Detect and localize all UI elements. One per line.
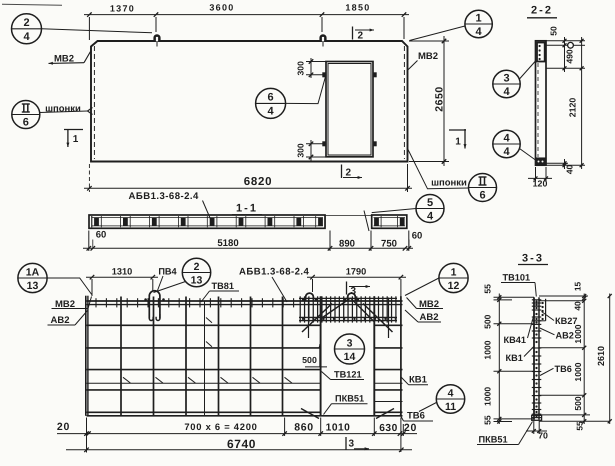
svg-text:3600: 3600 xyxy=(209,3,234,13)
svg-text:ТВ6: ТВ6 xyxy=(555,364,572,374)
svg-text:ТВ121: ТВ121 xyxy=(334,370,362,380)
svg-text:6740: 6740 xyxy=(227,437,256,451)
svg-text:6: 6 xyxy=(23,117,29,129)
svg-text:КВ41: КВ41 xyxy=(504,335,526,345)
svg-text:40: 40 xyxy=(573,301,583,311)
svg-text:ПВ4: ПВ4 xyxy=(158,266,177,276)
svg-text:2120: 2120 xyxy=(568,98,578,118)
svg-text:55: 55 xyxy=(483,415,493,425)
svg-text:13: 13 xyxy=(27,280,39,292)
svg-text:40: 40 xyxy=(565,165,575,175)
svg-text:3: 3 xyxy=(503,72,509,84)
svg-text:890: 890 xyxy=(339,239,355,250)
svg-text:4: 4 xyxy=(448,387,454,399)
svg-text:2650: 2650 xyxy=(434,86,446,111)
svg-text:60: 60 xyxy=(96,230,107,241)
svg-text:1: 1 xyxy=(451,266,457,278)
svg-text:ТВ81: ТВ81 xyxy=(212,281,234,291)
svg-text:6: 6 xyxy=(268,92,274,104)
svg-text:500: 500 xyxy=(483,314,493,329)
svg-text:3-3: 3-3 xyxy=(522,253,544,265)
svg-text:3: 3 xyxy=(349,439,355,450)
svg-text:60: 60 xyxy=(412,231,423,242)
svg-text:300: 300 xyxy=(296,61,306,76)
svg-text:70: 70 xyxy=(538,431,548,441)
svg-text:20: 20 xyxy=(404,422,417,434)
svg-text:4: 4 xyxy=(503,86,510,98)
svg-text:1А: 1А xyxy=(26,266,40,278)
svg-text:ПКВ51: ПКВ51 xyxy=(479,434,508,444)
svg-text:ТВ6: ТВ6 xyxy=(407,410,425,421)
svg-text:АБВ1.3-68-2.4: АБВ1.3-68-2.4 xyxy=(239,267,310,278)
svg-text:1: 1 xyxy=(476,12,482,24)
svg-text:АВ2: АВ2 xyxy=(419,312,438,323)
svg-text:4: 4 xyxy=(268,105,275,117)
svg-text:1000: 1000 xyxy=(483,387,493,406)
svg-text:1310: 1310 xyxy=(112,266,132,276)
svg-text:КВ1: КВ1 xyxy=(506,353,523,363)
svg-text:500: 500 xyxy=(302,355,317,365)
svg-text:14: 14 xyxy=(344,351,356,363)
svg-text:4: 4 xyxy=(476,26,483,38)
svg-text:1-1: 1-1 xyxy=(236,203,258,215)
svg-text:2: 2 xyxy=(346,168,352,179)
svg-text:300: 300 xyxy=(296,143,306,158)
svg-text:2610: 2610 xyxy=(596,346,606,366)
svg-text:6: 6 xyxy=(479,190,485,202)
svg-text:12: 12 xyxy=(448,280,460,292)
svg-text:55: 55 xyxy=(483,284,493,294)
svg-text:490: 490 xyxy=(565,49,575,64)
svg-text:АБВ1.3-68-2.4: АБВ1.3-68-2.4 xyxy=(129,191,200,202)
svg-text:4: 4 xyxy=(23,31,30,43)
svg-text:860: 860 xyxy=(294,421,314,433)
svg-text:1: 1 xyxy=(455,137,461,148)
svg-text:750: 750 xyxy=(381,239,397,250)
svg-text:МВ2: МВ2 xyxy=(418,51,438,62)
svg-text:шпонки: шпонки xyxy=(431,178,467,189)
svg-text:2: 2 xyxy=(23,17,29,29)
svg-text:6820: 6820 xyxy=(244,176,272,188)
svg-text:15: 15 xyxy=(573,282,583,292)
svg-text:55: 55 xyxy=(575,421,585,431)
svg-text:2-2: 2-2 xyxy=(531,5,553,17)
svg-text:АВ2: АВ2 xyxy=(556,330,574,340)
svg-text:4: 4 xyxy=(503,132,510,144)
svg-text:13: 13 xyxy=(191,275,203,287)
svg-text:2: 2 xyxy=(358,31,364,42)
svg-text:1010: 1010 xyxy=(326,422,351,433)
svg-text:ПКВ51: ПКВ51 xyxy=(335,393,364,403)
svg-text:ТВ101: ТВ101 xyxy=(503,272,531,282)
svg-text:4: 4 xyxy=(427,211,434,223)
svg-text:11: 11 xyxy=(445,401,456,413)
svg-text:КВ27: КВ27 xyxy=(555,316,577,326)
svg-text:1850: 1850 xyxy=(345,3,370,13)
svg-text:1790: 1790 xyxy=(346,266,366,276)
svg-text:КВ1: КВ1 xyxy=(409,375,428,386)
svg-text:2: 2 xyxy=(194,261,200,273)
svg-text:120: 120 xyxy=(533,179,548,189)
svg-text:630: 630 xyxy=(379,423,398,434)
svg-text:1370: 1370 xyxy=(110,4,135,14)
svg-text:20: 20 xyxy=(57,421,70,433)
svg-text:1000: 1000 xyxy=(573,324,583,343)
svg-text:50: 50 xyxy=(549,26,559,36)
svg-text:700 х 6 = 4200: 700 х 6 = 4200 xyxy=(184,421,257,432)
svg-text:1000: 1000 xyxy=(483,340,493,359)
svg-text:4: 4 xyxy=(503,146,510,158)
svg-text:500: 500 xyxy=(573,396,583,411)
svg-text:шпонки: шпонки xyxy=(45,104,81,115)
svg-text:1: 1 xyxy=(73,134,79,145)
svg-text:1000: 1000 xyxy=(573,362,583,381)
svg-text:3: 3 xyxy=(347,337,353,349)
svg-text:5: 5 xyxy=(427,197,433,209)
svg-text:5180: 5180 xyxy=(217,238,238,249)
